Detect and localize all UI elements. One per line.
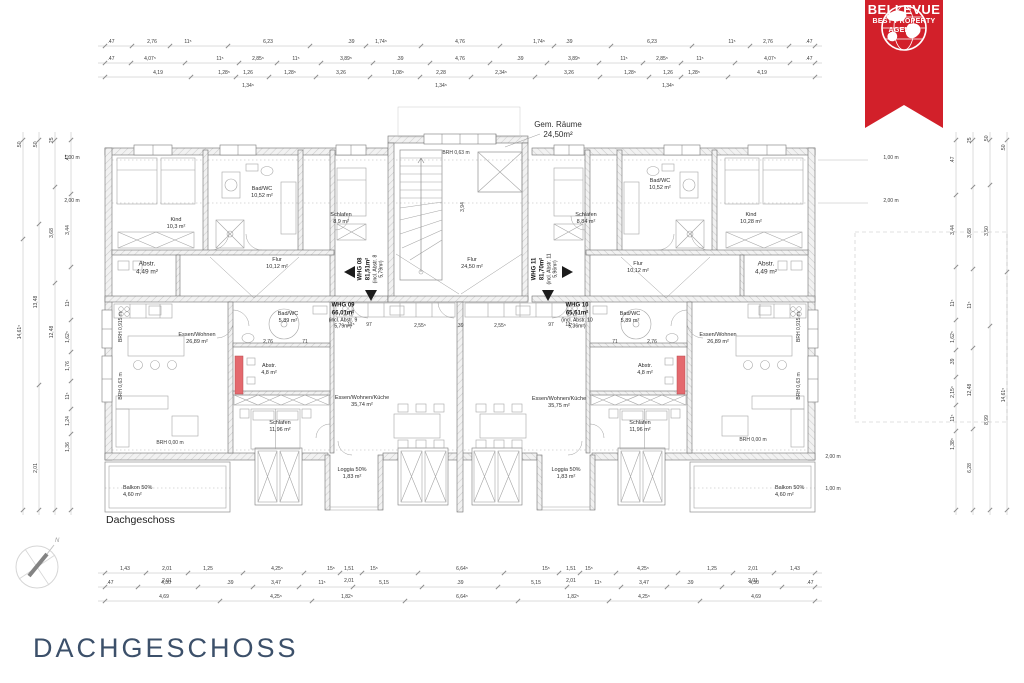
dim-label: 2,85⁵ bbox=[656, 56, 668, 62]
dim-tick bbox=[129, 44, 134, 49]
dim-tick bbox=[418, 44, 423, 49]
room-label-ewk-9: Essen/Wohnen/Küche35,74 m² bbox=[335, 395, 389, 409]
dim-label: 11⁵ bbox=[318, 580, 325, 586]
annotation-h100-br: 1,00 m bbox=[825, 486, 840, 492]
dim-label: 6,23 bbox=[263, 39, 273, 45]
dim-label: 1,82⁵ bbox=[341, 594, 353, 600]
dim-tick bbox=[53, 508, 58, 513]
room-label-abstr-9: Abstr.4,8 m² bbox=[261, 363, 277, 377]
room-label-essen-r: Essen/Wohnen26,89 m² bbox=[699, 332, 736, 346]
dim-tick bbox=[565, 585, 570, 590]
dim-label: 3,44 bbox=[65, 225, 71, 235]
room-name: Schlafen bbox=[629, 420, 650, 427]
dim-label: 2,34⁵ bbox=[495, 70, 507, 76]
room-name: Abstr. bbox=[755, 261, 777, 269]
dim-label: 2,28 bbox=[436, 70, 446, 76]
dim-tick bbox=[954, 403, 959, 408]
dim-tick bbox=[226, 44, 231, 49]
apartment-note2: 5,36m²) bbox=[561, 324, 592, 330]
room-area: 10,12 m² bbox=[266, 264, 288, 271]
dim-tick bbox=[297, 585, 302, 590]
dim-tick bbox=[1005, 269, 1010, 274]
room-name: Bad/WC bbox=[251, 186, 273, 193]
annotation-h200-br: 2,00 m bbox=[825, 454, 840, 460]
dim-label: 1,28⁵ bbox=[624, 70, 636, 76]
room-area: 26,89 m² bbox=[178, 339, 215, 346]
dim-tick bbox=[971, 427, 976, 432]
dim-tick bbox=[515, 599, 520, 604]
room-area: 35,74 m² bbox=[335, 402, 389, 409]
dim-tick bbox=[359, 571, 364, 576]
dim-tick bbox=[234, 75, 239, 80]
dim-label: 1,25 bbox=[707, 566, 717, 572]
room-name: Essen/Wohnen bbox=[699, 332, 736, 339]
entry-arrow-down-icon bbox=[365, 290, 377, 301]
dim-tick bbox=[136, 585, 141, 590]
dim-label: .50 bbox=[33, 142, 39, 149]
dim-label: 4,19 bbox=[153, 70, 163, 76]
dim-label: 11⁵ bbox=[594, 580, 601, 586]
room-name: Kind bbox=[740, 212, 762, 219]
dim-tick bbox=[185, 571, 190, 576]
compass-icon: N bbox=[10, 538, 68, 596]
dim-label: 3,89⁵ bbox=[568, 56, 580, 62]
dim-tick bbox=[988, 183, 993, 188]
dim-label: 1,34⁵ bbox=[435, 83, 447, 89]
dim-tick bbox=[37, 138, 42, 143]
dim-label: 1,28⁵ bbox=[688, 70, 700, 76]
dim-tick bbox=[69, 349, 74, 354]
room-label-bad-tl: Bad/WC10,52 m² bbox=[251, 186, 273, 200]
dim-tick bbox=[813, 61, 818, 66]
dim-tick bbox=[420, 585, 425, 590]
dim-tick bbox=[496, 585, 501, 590]
dim-label: 12,48 bbox=[967, 384, 973, 397]
dim-tick bbox=[556, 571, 561, 576]
floorplan-page: Gem. Räume24,50m²Flur24,50 m²Kind10,3 m²… bbox=[0, 0, 1024, 683]
dim-label: 1,74⁵ bbox=[533, 39, 545, 45]
dim-label: .39 bbox=[687, 580, 694, 586]
dim-tick bbox=[813, 599, 818, 604]
dim-label: 1,51 bbox=[566, 566, 576, 572]
room-area: 5,89 m² bbox=[620, 318, 640, 325]
room-label-schlafen-tr: Schlafen8,84 m² bbox=[575, 212, 596, 226]
dim-label: 1,38⁵ bbox=[950, 438, 956, 450]
dim-tick bbox=[578, 571, 583, 576]
dim-label: 3,68 bbox=[967, 228, 973, 238]
dim-tick bbox=[128, 61, 133, 66]
room-area: 1,83 m² bbox=[337, 474, 366, 481]
room-area: 4,8 m² bbox=[261, 370, 277, 377]
dim-label: 1,82⁵ bbox=[567, 594, 579, 600]
dim-label: 11⁵ bbox=[696, 56, 703, 62]
dim-tick bbox=[37, 508, 42, 513]
apartment-note2: 5,96m²) bbox=[553, 253, 559, 284]
entry-arrow-right-icon bbox=[562, 266, 573, 278]
dim-tick bbox=[69, 406, 74, 411]
compass-north-label: N bbox=[55, 538, 59, 544]
dim-tick bbox=[1005, 138, 1010, 143]
dim-tick bbox=[428, 61, 433, 66]
dim-label: 5,15 bbox=[531, 580, 541, 586]
dim-label: 1,28⁵ bbox=[284, 70, 296, 76]
dim-tick bbox=[275, 61, 280, 66]
dim-label: 1,43 bbox=[120, 566, 130, 572]
room-area: 8,84 m² bbox=[575, 219, 596, 226]
dim-tick bbox=[69, 379, 74, 384]
room-area: 4,8 m² bbox=[637, 370, 653, 377]
dim-label: 3,26 bbox=[336, 70, 346, 76]
room-area: 10,52 m² bbox=[251, 193, 273, 200]
entry-arrow-down-icon bbox=[542, 290, 554, 301]
dim-label: 11⁵ bbox=[950, 414, 956, 421]
apartment-label-whg10: WHG 10 65,61m² (incl. Abstr. 10 5,36m²) bbox=[561, 302, 592, 330]
room-name: Flur bbox=[627, 261, 649, 268]
dim-label: .47 bbox=[950, 157, 956, 164]
dim-label: 2,76 bbox=[763, 39, 773, 45]
dim-tick bbox=[730, 571, 735, 576]
dim-tick bbox=[371, 61, 376, 66]
dim-tick bbox=[545, 61, 550, 66]
apartment-id: WHG 08 bbox=[357, 255, 365, 284]
room-label-abstr-tr: Abstr.4,49 m² bbox=[755, 261, 777, 278]
dim-tick bbox=[69, 138, 74, 143]
apartment-id: WHG 10 bbox=[561, 302, 592, 310]
dim-label: 1,25 bbox=[203, 566, 213, 572]
dim-label: 3,50 bbox=[984, 226, 990, 236]
dim-tick bbox=[103, 585, 108, 590]
dim-label: 71 bbox=[302, 339, 308, 345]
room-name: Schlafen bbox=[330, 212, 351, 219]
dim-tick bbox=[402, 599, 407, 604]
room-area: 11,96 m² bbox=[269, 427, 290, 434]
dim-label: .39 bbox=[457, 323, 464, 329]
dim-tick bbox=[597, 75, 602, 80]
dim-tick bbox=[37, 383, 42, 388]
dim-tick bbox=[69, 192, 74, 197]
dim-tick bbox=[319, 61, 324, 66]
dim-label: .39 bbox=[950, 359, 956, 366]
room-name: Bad/WC bbox=[649, 178, 671, 185]
dim-tick bbox=[647, 75, 652, 80]
dim-tick bbox=[189, 75, 194, 80]
dim-label: 11⁵ bbox=[728, 39, 735, 45]
dim-label: .39 bbox=[227, 580, 234, 586]
dim-tick bbox=[679, 61, 684, 66]
dim-label: .39 bbox=[348, 39, 355, 45]
apartment-id: WHG 09 bbox=[329, 302, 358, 310]
dim-label: 3,47 bbox=[639, 580, 649, 586]
dim-label: 1,34⁵ bbox=[662, 83, 674, 89]
apartment-area: 66,01m² bbox=[329, 310, 358, 318]
room-area: 4,60 m² bbox=[123, 492, 152, 499]
dim-tick bbox=[720, 585, 725, 590]
dim-label: 4,69 bbox=[751, 594, 761, 600]
room-label-abstr-tl: Abstr.4,49 m² bbox=[136, 261, 158, 278]
plan-caption: Dachgeschoss bbox=[106, 514, 175, 526]
dim-label: 4,76 bbox=[455, 56, 465, 62]
dim-label: 6,23 bbox=[647, 39, 657, 45]
dim-label: .39 bbox=[566, 39, 573, 45]
dim-tick bbox=[988, 323, 993, 328]
dim-tick bbox=[988, 508, 993, 513]
dim-tick bbox=[733, 61, 738, 66]
annotation-brh000-l: BRH 0,00 m bbox=[156, 440, 183, 446]
dim-label: 2,01 bbox=[344, 578, 354, 584]
dim-tick bbox=[240, 571, 245, 576]
room-label-kind-l: Kind10,3 m² bbox=[167, 217, 186, 231]
room-name: Schlafen bbox=[269, 420, 290, 427]
dim-tick bbox=[338, 571, 343, 576]
annotation-brh063-r: BRH 0,63 m bbox=[796, 372, 802, 399]
dim-label: .39 bbox=[457, 580, 464, 586]
dim-tick bbox=[954, 508, 959, 513]
dim-tick bbox=[787, 61, 792, 66]
dim-tick bbox=[502, 571, 507, 576]
room-label-flur-c: Flur24,50 m² bbox=[461, 257, 483, 271]
dim-tick bbox=[53, 280, 58, 285]
dim-label: 11⁵ bbox=[620, 56, 627, 62]
dim-tick bbox=[183, 61, 188, 66]
dim-tick bbox=[641, 61, 646, 66]
apartment-label-whg08: WHG 08 81,51m² (incl. Abstr. 8 5,79m²) bbox=[357, 255, 385, 284]
dim-tick bbox=[552, 44, 557, 49]
room-label-schlafen-10: Schlafen11,96 m² bbox=[629, 420, 650, 434]
dim-label: .50 bbox=[1001, 145, 1007, 152]
room-label-ewk-10: Essen/Wohnen/Küche35,75 m² bbox=[532, 396, 586, 410]
dim-label: 1,76 bbox=[65, 361, 71, 371]
dim-tick bbox=[69, 264, 74, 269]
dim-label: .47 bbox=[806, 39, 813, 45]
room-area: 10,52 m² bbox=[649, 185, 671, 192]
dim-tick bbox=[971, 345, 976, 350]
dim-label: 71 bbox=[612, 339, 618, 345]
dim-tick bbox=[103, 599, 108, 604]
dim-tick bbox=[748, 44, 753, 49]
dim-tick bbox=[69, 318, 74, 323]
dim-label: 12,48 bbox=[49, 326, 55, 339]
dim-label: .50 bbox=[17, 142, 23, 149]
dim-label: 1,08⁵ bbox=[392, 70, 404, 76]
entry-arrow-left-icon bbox=[344, 266, 355, 278]
annotation-h200-tl: 2,00 m bbox=[64, 198, 79, 204]
dim-tick bbox=[307, 44, 312, 49]
dim-tick bbox=[780, 585, 785, 590]
room-label-balkon-l: Balkon 50%4,60 m² bbox=[123, 485, 152, 499]
dim-tick bbox=[103, 44, 108, 49]
dim-tick bbox=[21, 508, 26, 513]
dim-tick bbox=[679, 75, 684, 80]
room-area: 5,89 m² bbox=[278, 318, 298, 325]
dim-tick bbox=[690, 44, 695, 49]
room-label-bad-tr: Bad/WC10,52 m² bbox=[649, 178, 671, 192]
room-name: Loggia 50% bbox=[337, 467, 366, 474]
room-name: Balkon 50% bbox=[775, 485, 804, 492]
room-name: Essen/Wohnen/Küche bbox=[532, 396, 586, 403]
dim-label: 6,28 bbox=[967, 463, 973, 473]
room-area: 24,50 m² bbox=[461, 264, 483, 271]
dim-tick bbox=[619, 585, 624, 590]
dim-label: 2,85⁵ bbox=[252, 56, 264, 62]
room-name: Flur bbox=[266, 257, 288, 264]
annotation-brh000-r: BRH 0,00 m bbox=[739, 437, 766, 443]
dim-label: 2,76 bbox=[263, 339, 273, 345]
room-area: 4,60 m² bbox=[775, 492, 804, 499]
room-label-flur-tr: Flur10,12 m² bbox=[627, 261, 649, 275]
dim-label: 1,43 bbox=[790, 566, 800, 572]
dim-tick bbox=[367, 75, 372, 80]
dim-tick bbox=[614, 571, 619, 576]
dim-tick bbox=[772, 571, 777, 576]
dim-tick bbox=[954, 375, 959, 380]
dim-tick bbox=[196, 585, 201, 590]
room-label-flur-tl: Flur10,12 m² bbox=[266, 257, 288, 271]
dim-label: 4,25⁵ bbox=[270, 594, 282, 600]
dim-label: 11⁵ bbox=[967, 301, 973, 308]
dim-label: .47 bbox=[108, 56, 115, 62]
annotation-dim394: 3,94 bbox=[460, 202, 466, 212]
room-label-schlafen-tl: Schlafen8,9 m² bbox=[330, 212, 351, 226]
dim-label: 1,36 bbox=[65, 442, 71, 452]
room-name: Flur bbox=[461, 257, 483, 264]
dim-label: 2,01 bbox=[162, 566, 172, 572]
dim-tick bbox=[103, 571, 108, 576]
dim-label: 3,26 bbox=[564, 70, 574, 76]
dim-label: 11⁵ bbox=[216, 56, 223, 62]
dim-label: 13,48 bbox=[33, 296, 39, 309]
page-title: DACHGESCHOSS bbox=[33, 633, 299, 664]
dim-tick bbox=[675, 571, 680, 576]
dim-label: 2,15⁵ bbox=[950, 386, 956, 398]
apartment-note2: 5,79m²) bbox=[379, 255, 385, 284]
room-label-abstr-10: Abstr.4,8 m² bbox=[637, 363, 653, 377]
room-name: Balkon 50% bbox=[123, 485, 152, 492]
dim-tick bbox=[313, 75, 318, 80]
dim-tick bbox=[608, 44, 613, 49]
room-area: 4,49 m² bbox=[755, 269, 777, 277]
dim-label: 2,01 bbox=[33, 463, 39, 473]
dim-label: 1,62⁵ bbox=[950, 331, 956, 343]
dim-label: .39 bbox=[397, 56, 404, 62]
apartment-label-whg09: WHG 09 66,01m² (incl. Abstr. 9 5,79m²) bbox=[329, 302, 358, 330]
dim-tick bbox=[416, 571, 421, 576]
dim-tick bbox=[606, 599, 611, 604]
annotation-brh-stair: BRH 0,63 m bbox=[442, 150, 469, 156]
room-label-schlafen-9: Schlafen11,96 m² bbox=[269, 420, 290, 434]
dim-tick bbox=[954, 318, 959, 323]
room-label-kind-r: Kind10,28 m² bbox=[740, 212, 762, 226]
dim-label: .47 bbox=[807, 580, 814, 586]
dim-tick bbox=[251, 585, 256, 590]
room-area: 8,9 m² bbox=[330, 219, 351, 226]
apartment-area: 81,51m² bbox=[365, 255, 373, 284]
dim-tick bbox=[144, 571, 149, 576]
dim-tick bbox=[971, 508, 976, 513]
room-area: 26,89 m² bbox=[699, 339, 736, 346]
room-name: Kind bbox=[167, 217, 186, 224]
dim-label: 4,07⁵ bbox=[144, 56, 156, 62]
room-name: Essen/Wohnen bbox=[178, 332, 215, 339]
dim-label: 15⁵ bbox=[327, 566, 335, 572]
dim-label: 2,01 bbox=[748, 566, 758, 572]
dim-tick bbox=[103, 61, 108, 66]
dim-label: 2,76 bbox=[147, 39, 157, 45]
dim-tick bbox=[168, 44, 173, 49]
dim-tick bbox=[21, 236, 26, 241]
dim-label: 1,51 bbox=[344, 566, 354, 572]
dim-label: 1,24 bbox=[65, 416, 71, 426]
dim-tick bbox=[237, 61, 242, 66]
room-area: 24,50m² bbox=[534, 130, 582, 140]
dim-label: 11⁵ bbox=[184, 39, 191, 45]
dim-tick bbox=[971, 185, 976, 190]
dim-tick bbox=[53, 185, 58, 190]
dim-label: 3,89⁵ bbox=[340, 56, 352, 62]
room-label-loggia-10: Loggia 50%1,83 m² bbox=[551, 467, 580, 481]
dim-label: .47 bbox=[65, 155, 71, 162]
dim-label: 4,30 bbox=[161, 580, 171, 586]
room-area: 10,28 m² bbox=[740, 219, 762, 226]
room-name: Loggia 50% bbox=[551, 467, 580, 474]
room-name: Bad/WC bbox=[620, 311, 640, 318]
dim-label: 11⁵ bbox=[65, 392, 71, 399]
dim-label: 1,34⁵ bbox=[242, 83, 254, 89]
dim-tick bbox=[417, 75, 422, 80]
dim-label: 1,62⁵ bbox=[65, 331, 71, 343]
dim-label: 3,47 bbox=[271, 580, 281, 586]
dim-label: 97 bbox=[366, 322, 372, 328]
dim-label: 11⁵ bbox=[950, 299, 956, 306]
dim-tick bbox=[954, 138, 959, 143]
annotation-brh063-l: BRH 0,63 m bbox=[118, 372, 124, 399]
dim-label: 4,25⁵ bbox=[638, 594, 650, 600]
room-name: Abstr. bbox=[261, 363, 277, 370]
dim-label: 15⁵ bbox=[370, 566, 378, 572]
dim-tick bbox=[69, 508, 74, 513]
room-label-gem: Gem. Räume24,50m² bbox=[534, 120, 582, 140]
dim-label: 3,44 bbox=[950, 225, 956, 235]
dim-label: .47 bbox=[806, 56, 813, 62]
room-label-badwc-10: Bad/WC5,89 m² bbox=[620, 311, 640, 325]
dim-tick bbox=[813, 75, 818, 80]
annotation-h100-tr: 1,00 m bbox=[883, 155, 898, 161]
dim-tick bbox=[954, 264, 959, 269]
dim-label: 4,69 bbox=[159, 594, 169, 600]
dim-label: 4,07⁵ bbox=[764, 56, 776, 62]
dim-tick bbox=[813, 44, 818, 49]
room-name: Schlafen bbox=[575, 212, 596, 219]
apartment-area: 65,61m² bbox=[561, 310, 592, 318]
annotation-h200-tr: 2,00 m bbox=[883, 198, 898, 204]
dim-tick bbox=[665, 585, 670, 590]
dim-tick bbox=[267, 75, 272, 80]
dim-tick bbox=[971, 267, 976, 272]
room-name: Abstr. bbox=[136, 261, 158, 269]
room-name: Gem. Räume bbox=[534, 120, 582, 130]
room-name: Essen/Wohnen/Küche bbox=[335, 395, 389, 402]
dim-label: 1,26 bbox=[663, 70, 673, 76]
dim-label: 15⁵ bbox=[542, 566, 550, 572]
dim-label: 15⁵ bbox=[585, 566, 593, 572]
dim-label: .39 bbox=[517, 56, 524, 62]
dim-label: 5,15 bbox=[379, 580, 389, 586]
dim-tick bbox=[813, 571, 818, 576]
dim-tick bbox=[726, 75, 731, 80]
dim-tick bbox=[954, 347, 959, 352]
dim-tick bbox=[37, 221, 42, 226]
dim-tick bbox=[497, 44, 502, 49]
dim-label: 2,76 bbox=[647, 339, 657, 345]
